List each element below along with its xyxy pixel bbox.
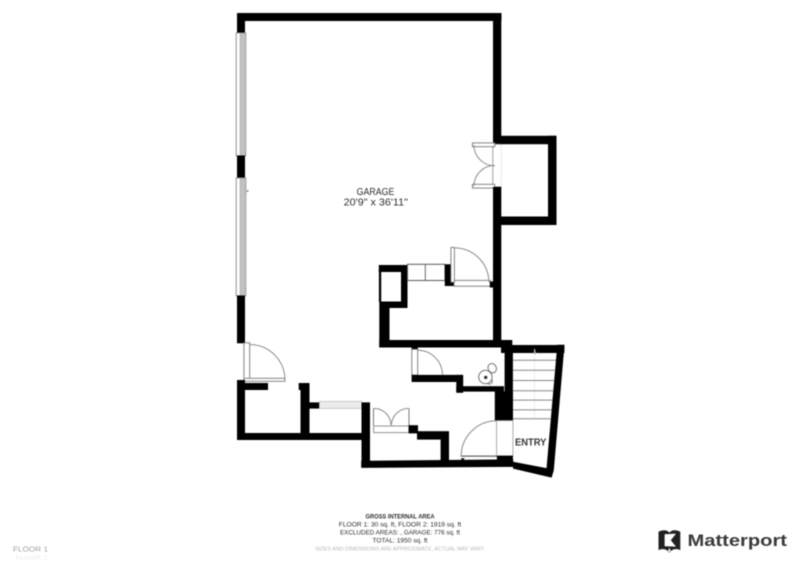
svg-text:FLOOR 2: FLOOR 2 <box>16 555 48 562</box>
svg-text:FLOOR 1: 30 sq. ft, FLOOR 2: 1: FLOOR 1: 30 sq. ft, FLOOR 2: 1919 sq. ft <box>339 522 462 529</box>
svg-text:SIZES AND DIMENSIONS ARE APPRO: SIZES AND DIMENSIONS ARE APPROXIMATE, AC… <box>315 546 485 552</box>
svg-text:Matterport: Matterport <box>688 531 788 550</box>
svg-text:EXCLUDED AREAS: , GARAGE: 776: EXCLUDED AREAS: , GARAGE: 776 sq. ft <box>340 529 460 536</box>
svg-text:ENTRY: ENTRY <box>515 437 547 448</box>
svg-text:TOTAL: 1950 sq. ft: TOTAL: 1950 sq. ft <box>373 537 428 544</box>
svg-text:GARAGE: GARAGE <box>357 187 395 198</box>
svg-text:GROSS INTERNAL AREA: GROSS INTERNAL AREA <box>366 515 436 521</box>
svg-text:20'9" x 36'11": 20'9" x 36'11" <box>344 198 409 209</box>
svg-text:FLOOR 1: FLOOR 1 <box>13 544 48 553</box>
